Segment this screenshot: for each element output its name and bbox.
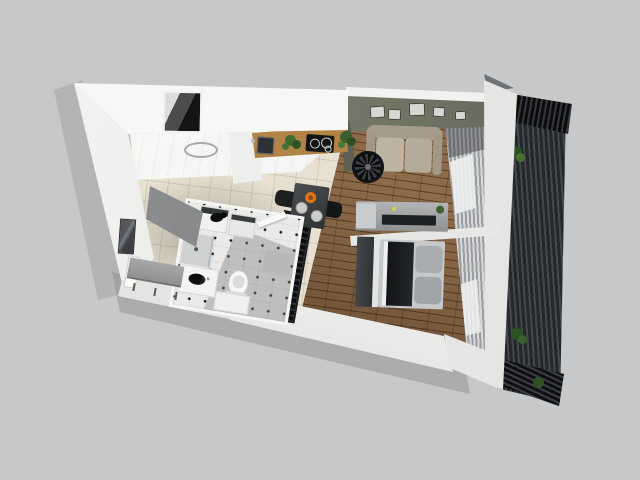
outer-wall-lip xyxy=(0,0,640,480)
drawer-unit xyxy=(213,291,251,315)
living-plant-leaf xyxy=(338,141,345,148)
window-frame-bedroom xyxy=(0,0,640,480)
burner xyxy=(310,138,321,149)
window-strip-blinds xyxy=(0,0,640,480)
burner xyxy=(324,145,331,152)
balcony-slatted-railing xyxy=(0,0,640,480)
round-sink-bowl xyxy=(188,272,207,286)
sideboard-end xyxy=(356,203,376,228)
olive-accent-wall xyxy=(0,0,640,480)
dining-chair-left xyxy=(274,189,301,209)
black-cat xyxy=(210,212,224,222)
decor-dot xyxy=(392,207,396,211)
top-outer-wall xyxy=(0,0,640,480)
bookshelf xyxy=(265,210,314,324)
sheet-fold xyxy=(382,241,389,305)
bathroom-appliance xyxy=(228,213,257,239)
sofa-back xyxy=(366,125,442,141)
kitchen-plant-leaf xyxy=(282,143,289,150)
picture-frame xyxy=(455,111,466,121)
book xyxy=(283,257,287,261)
washer-slot xyxy=(201,207,229,217)
pillow xyxy=(415,246,443,274)
wall-mirror xyxy=(118,218,136,254)
book xyxy=(289,272,293,276)
balcony-plant-leaf xyxy=(518,335,527,344)
picture-frame xyxy=(388,109,402,121)
washing-machine xyxy=(197,205,229,233)
bathroom-side-cabinet xyxy=(262,250,292,276)
shower-drain xyxy=(194,247,199,252)
bedroom-wardrobe-slab xyxy=(355,236,374,307)
kitchen-faucet xyxy=(251,139,255,143)
dining-chair-right xyxy=(316,199,343,219)
entry-bench xyxy=(127,257,185,287)
vanity xyxy=(176,264,219,298)
sofa-arm-left xyxy=(365,133,375,173)
dining-table xyxy=(289,183,330,229)
pillow xyxy=(414,276,442,304)
entry-door xyxy=(124,255,141,288)
shower-tray xyxy=(179,231,215,268)
bedroom-partition-wall xyxy=(0,0,640,480)
tv-sideboard xyxy=(356,201,448,232)
sofa xyxy=(365,125,443,178)
kitchen-plant xyxy=(285,135,296,146)
book xyxy=(292,240,296,244)
black-cat-head xyxy=(220,212,227,219)
olive-wall-corner xyxy=(0,0,640,480)
balcony-lower-deck xyxy=(0,0,640,480)
toilet-seat xyxy=(232,274,246,289)
shadow-left-wall xyxy=(0,0,640,480)
hallway-ceiling xyxy=(0,0,640,480)
round-coffee-table xyxy=(352,151,384,183)
floorplan-render xyxy=(0,0,640,480)
dark-duvet xyxy=(386,242,414,307)
bottom-outer-wall-right xyxy=(0,0,640,480)
bathroom-gray-tiles xyxy=(172,201,301,322)
book xyxy=(277,286,281,290)
balcony-roof-corner xyxy=(0,0,640,480)
bathroom-door xyxy=(257,211,287,227)
plate xyxy=(295,201,309,215)
balcony-plant-leaf xyxy=(516,153,525,162)
wood-plank-floor xyxy=(0,0,640,480)
book xyxy=(281,303,285,307)
bathroom xyxy=(169,198,305,325)
living-plant-leaf xyxy=(347,137,356,146)
kitchen-tall-cabinet xyxy=(0,0,640,480)
railing-post xyxy=(496,258,501,263)
hallway-wardrobe-panel xyxy=(0,0,640,480)
plate xyxy=(310,209,324,223)
balcony-roof-overhang xyxy=(0,0,640,480)
hallway-tile-floor xyxy=(0,0,640,480)
sofa-cushion-right xyxy=(404,138,432,173)
kitchen-sink xyxy=(256,136,274,154)
window-frame-living xyxy=(0,0,640,480)
sofa-arm-right xyxy=(432,135,442,175)
bottom-outer-wall-left xyxy=(0,0,640,480)
sideboard-plant xyxy=(436,206,444,214)
book xyxy=(287,225,291,229)
picture-frame xyxy=(370,105,386,118)
railing-post xyxy=(494,148,499,153)
bench-leg xyxy=(174,292,177,300)
living-plant xyxy=(340,131,352,143)
kitchen-wood-countertop xyxy=(0,0,640,480)
bench-leg xyxy=(153,288,156,296)
mattress xyxy=(378,239,445,309)
window-shaded-section xyxy=(0,0,640,480)
shadow-bottom-wall xyxy=(0,0,640,480)
coffee-table-hub xyxy=(365,164,371,170)
kitchen-plant-leaf xyxy=(292,140,301,149)
fruit-bowl xyxy=(304,191,316,203)
right-outer-wall-corner xyxy=(0,0,640,480)
bench-leg xyxy=(132,283,135,291)
railing-post xyxy=(495,203,500,208)
round-ceiling-lamp xyxy=(184,142,218,158)
toilet-bowl xyxy=(227,269,251,297)
cooktop xyxy=(305,134,334,153)
left-outer-wall xyxy=(0,0,640,480)
picture-frame xyxy=(433,107,446,118)
sofa-cushion-left xyxy=(375,137,404,172)
bathroom-tile-floor xyxy=(172,201,301,322)
toilet-tank xyxy=(224,290,246,304)
bed-frame-edge xyxy=(372,237,380,307)
balcony-plant xyxy=(511,328,523,340)
picture-frame xyxy=(409,103,425,117)
right-outer-wall xyxy=(0,0,640,480)
ventilation-shaft xyxy=(163,91,203,134)
bed-group xyxy=(355,236,447,311)
balcony-plant xyxy=(510,146,522,158)
flat-tv xyxy=(382,215,436,226)
railing-post xyxy=(497,313,502,318)
burner xyxy=(321,137,333,149)
appliance-slot xyxy=(231,214,255,223)
vanity-faucet xyxy=(206,277,209,280)
balcony-plant xyxy=(533,377,544,388)
